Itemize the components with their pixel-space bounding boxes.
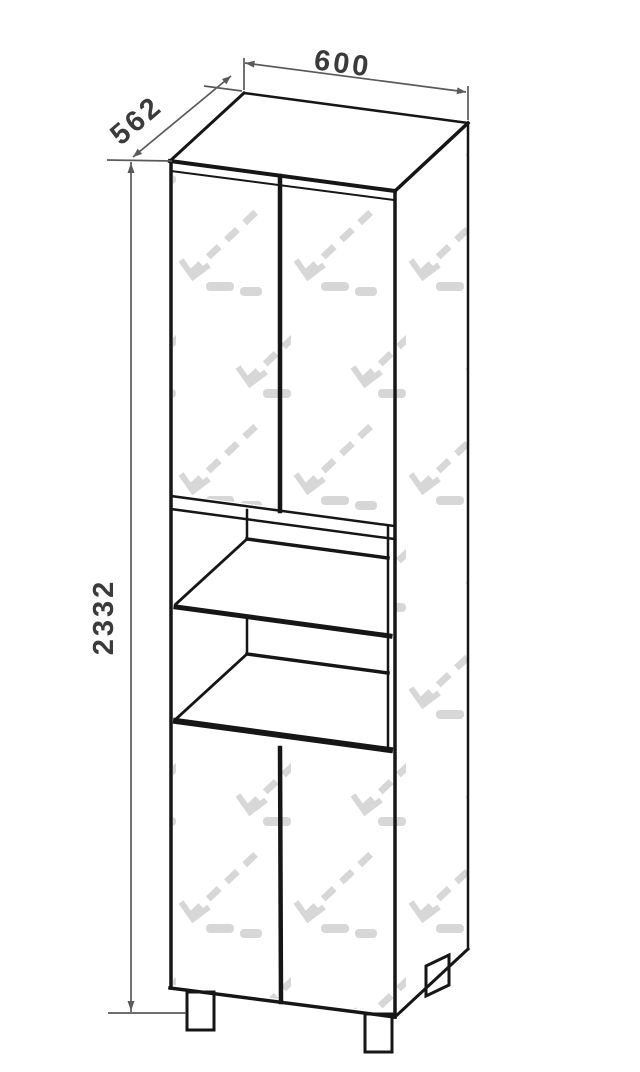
technical-drawing-page: 600 562 2332 xyxy=(0,0,640,1072)
arrowhead xyxy=(245,61,255,68)
depth-back-extension-line xyxy=(204,86,242,91)
side-face-watermark xyxy=(396,123,468,1017)
arrowhead xyxy=(128,163,135,173)
arrowhead xyxy=(457,87,466,94)
front-right-foot xyxy=(365,1014,392,1052)
width-dimension-label: 600 xyxy=(312,44,373,83)
height-top-extension-line xyxy=(107,160,172,161)
lower-doors-gap xyxy=(280,748,281,1002)
height-dimension-label: 2332 xyxy=(88,579,120,656)
arrowhead xyxy=(128,1001,135,1011)
cabinet-faces xyxy=(170,93,468,1017)
upper-doors-watermark xyxy=(173,172,393,523)
depth-dimension-label: 562 xyxy=(104,90,168,152)
cabinet-technical-drawing: 600 562 2332 xyxy=(0,0,640,1072)
front-left-foot xyxy=(187,992,214,1030)
